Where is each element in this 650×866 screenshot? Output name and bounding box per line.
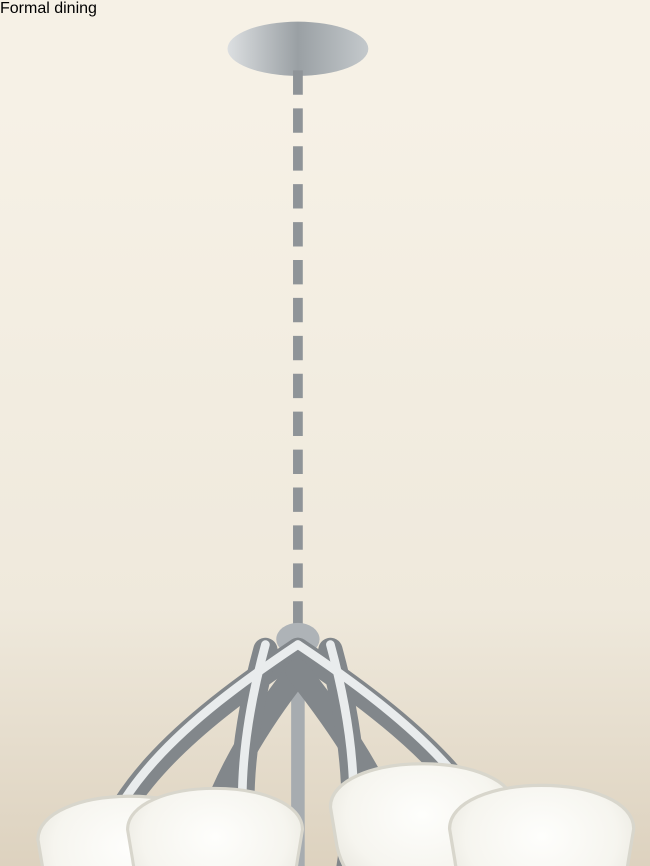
chandelier-icon (0, 0, 650, 866)
listing-photo-formal-dining: Formal dining (0, 0, 650, 866)
caption-text: Formal dining (0, 0, 97, 18)
